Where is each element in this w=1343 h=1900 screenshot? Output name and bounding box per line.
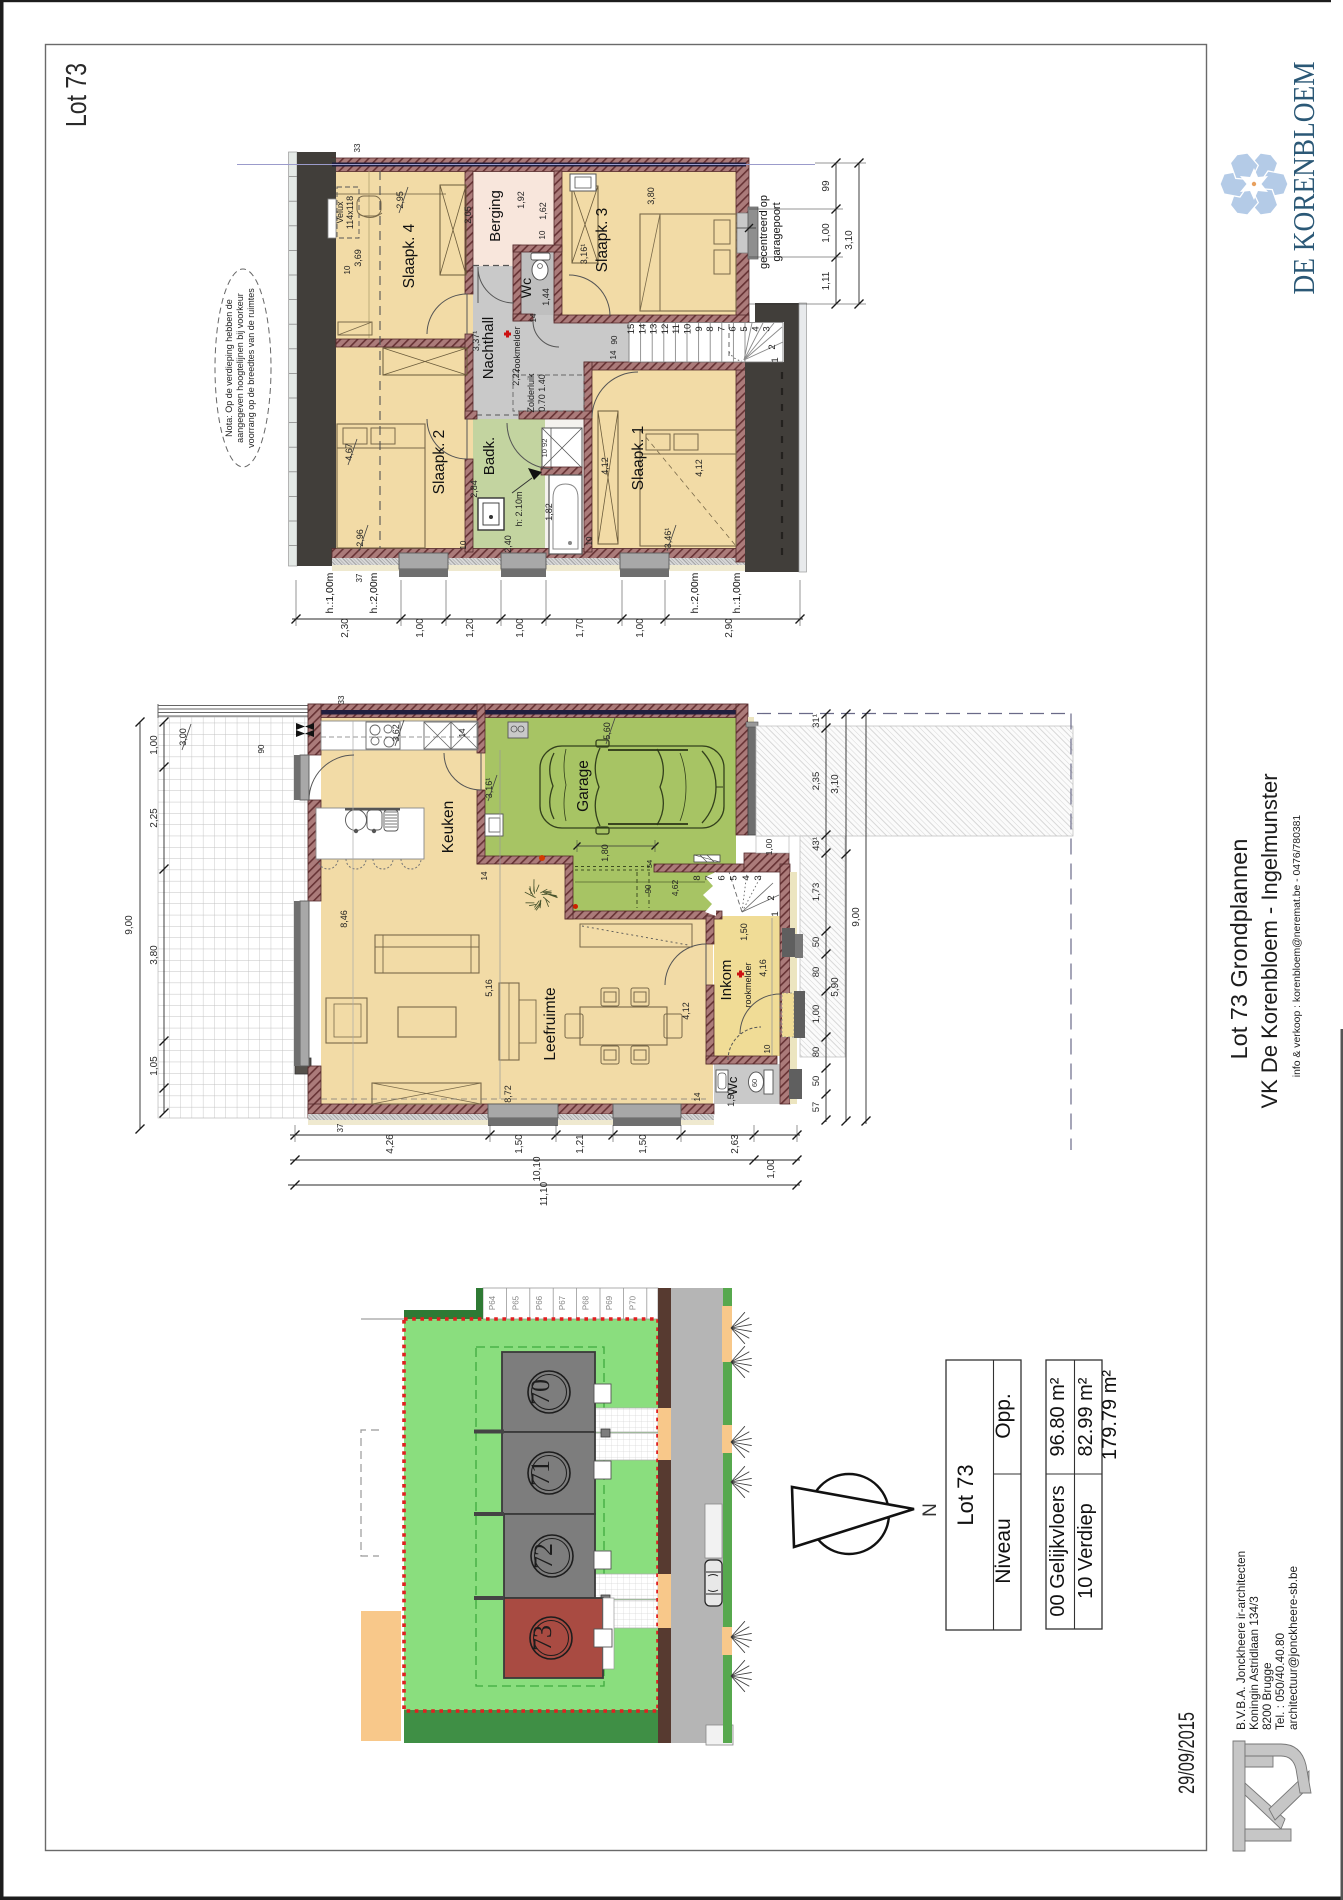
- svg-text:4,26: 4,26: [385, 1134, 396, 1154]
- svg-text:B.V.B.A. Jonckheere ir-archite: B.V.B.A. Jonckheere ir-architecten: [1234, 1551, 1248, 1730]
- svg-text:info & verkoop : korenbloem@ne: info & verkoop : korenbloem@neremat.be -…: [1292, 815, 1303, 1078]
- svg-text:Nota: Op de verdieping hebben: Nota: Op de verdieping hebben de: [224, 299, 234, 437]
- svg-text:1,50: 1,50: [514, 1134, 525, 1154]
- svg-text:1,80: 1,80: [600, 844, 610, 862]
- svg-text:2,35: 2,35: [811, 772, 822, 791]
- svg-text:1,00: 1,00: [811, 1005, 822, 1024]
- svg-text:9,00: 9,00: [124, 915, 135, 935]
- svg-text:Slaapk. 4: Slaapk. 4: [401, 223, 418, 288]
- svg-text:3,37¹: 3,37¹: [471, 331, 481, 352]
- svg-text:4,12: 4,12: [600, 457, 610, 475]
- svg-text:10: 10: [538, 230, 547, 239]
- svg-text:2,30: 2,30: [340, 618, 351, 638]
- svg-text:4,12: 4,12: [681, 1002, 691, 1020]
- svg-text:3,80: 3,80: [646, 187, 656, 205]
- svg-text:Wc: Wc: [518, 278, 534, 298]
- svg-text:P68: P68: [582, 1295, 591, 1310]
- svg-text:h.:2,00m: h.:2,00m: [689, 572, 701, 613]
- svg-text:6: 6: [728, 326, 739, 331]
- svg-text:Opp.: Opp.: [992, 1393, 1015, 1439]
- svg-text:3,80: 3,80: [149, 945, 160, 965]
- svg-text:P67: P67: [558, 1295, 567, 1310]
- svg-text:1,11: 1,11: [821, 271, 832, 290]
- svg-text:2,90: 2,90: [724, 618, 735, 638]
- svg-text:P64: P64: [488, 1295, 497, 1310]
- svg-text:3: 3: [762, 326, 773, 331]
- svg-text:00 Gelijkvloers: 00 Gelijkvloers: [1047, 1485, 1069, 1616]
- svg-text:5,16: 5,16: [484, 979, 494, 997]
- svg-text:3,16¹: 3,16¹: [579, 244, 589, 265]
- svg-text:4,16: 4,16: [758, 959, 768, 977]
- svg-text:15: 15: [626, 324, 637, 335]
- svg-text:90: 90: [610, 335, 619, 344]
- svg-text:10 92: 10 92: [540, 439, 549, 458]
- svg-text:37: 37: [355, 573, 364, 582]
- svg-text:12: 12: [660, 324, 671, 335]
- svg-text:9: 9: [694, 326, 705, 331]
- svg-text:Lot 73: Lot 73: [953, 1464, 978, 1525]
- svg-text:14: 14: [637, 324, 648, 335]
- svg-text:10: 10: [343, 265, 352, 274]
- svg-text:Slaapk. 2: Slaapk. 2: [431, 430, 448, 495]
- svg-text:1,50: 1,50: [638, 1134, 649, 1154]
- svg-text:6: 6: [716, 875, 727, 880]
- svg-text:7: 7: [704, 875, 715, 880]
- svg-text:80: 80: [811, 967, 822, 978]
- svg-text:90: 90: [644, 884, 653, 893]
- svg-text:82.99 m²: 82.99 m²: [1075, 1377, 1097, 1456]
- svg-text:2: 2: [766, 895, 777, 900]
- svg-text:2,05: 2,05: [463, 206, 473, 224]
- svg-text:1: 1: [770, 911, 781, 916]
- svg-text:96.80 m²: 96.80 m²: [1047, 1377, 1069, 1456]
- svg-text:14: 14: [609, 350, 618, 359]
- svg-text:2,63: 2,63: [730, 1134, 741, 1154]
- svg-text:3,10: 3,10: [830, 774, 841, 794]
- svg-text:1,44: 1,44: [541, 288, 551, 306]
- svg-text:33: 33: [353, 143, 362, 152]
- svg-text:14: 14: [458, 728, 467, 737]
- svg-text:10: 10: [683, 324, 694, 335]
- svg-text:5: 5: [729, 875, 740, 880]
- svg-text:1,00: 1,00: [415, 618, 426, 638]
- svg-text:2: 2: [767, 344, 778, 349]
- svg-text:1,50: 1,50: [726, 1089, 736, 1107]
- svg-text:50: 50: [811, 1076, 822, 1087]
- svg-text:11,10: 11,10: [539, 1181, 550, 1206]
- svg-text:3,69: 3,69: [353, 249, 363, 267]
- svg-text:11: 11: [671, 324, 682, 334]
- svg-text:gecentreerd op: gecentreerd op: [758, 195, 770, 269]
- svg-text:Slaapk. 1: Slaapk. 1: [630, 426, 647, 491]
- svg-text:2,40: 2,40: [503, 535, 513, 553]
- svg-text:8: 8: [692, 875, 703, 880]
- svg-text:Zolderluik: Zolderluik: [526, 373, 536, 413]
- svg-text:Tel. : 050/40.40.80: Tel. : 050/40.40.80: [1273, 1632, 1287, 1730]
- svg-text:1,50: 1,50: [739, 923, 749, 941]
- svg-text:1,00: 1,00: [515, 618, 526, 638]
- svg-text:1,00: 1,00: [635, 618, 646, 638]
- svg-text:Inkom: Inkom: [718, 960, 735, 1001]
- svg-text:h.:1,00m: h.:1,00m: [324, 572, 336, 613]
- svg-text:P65: P65: [511, 1295, 520, 1310]
- svg-text:aangegeven hoogtelijnen bij v: aangegeven hoogtelijnen bij voorkeur: [235, 293, 245, 443]
- svg-text:71: 71: [526, 1460, 555, 1486]
- svg-text:31¹: 31¹: [811, 714, 822, 728]
- svg-text:29/09/2015: 29/09/2015: [1174, 1712, 1199, 1794]
- svg-text:5,90: 5,90: [830, 977, 841, 997]
- svg-text:33: 33: [337, 695, 346, 704]
- svg-text:h.:1,00m: h.:1,00m: [731, 572, 743, 613]
- svg-text:179.79 m²: 179.79 m²: [1099, 1370, 1121, 1460]
- svg-text:Velux: Velux: [335, 201, 345, 224]
- svg-text:1,00: 1,00: [764, 838, 774, 855]
- svg-text:Garage: Garage: [575, 760, 592, 812]
- svg-text:8200 Brugge: 8200 Brugge: [1260, 1662, 1274, 1730]
- svg-text:h.:2,00m: h.:2,00m: [368, 572, 380, 613]
- svg-text:Koningin Astridlaan 134/3: Koningin Astridlaan 134/3: [1247, 1596, 1261, 1730]
- svg-text:14: 14: [480, 871, 489, 880]
- svg-text:Lot 73 Grondplannen: Lot 73 Grondplannen: [1226, 839, 1252, 1060]
- svg-text:VK De Korenbloem - Ingelmunst: VK De Korenbloem - Ingelmunster: [1257, 773, 1282, 1108]
- svg-text:P69: P69: [605, 1295, 614, 1310]
- svg-text:1,00: 1,00: [766, 1159, 777, 1179]
- svg-text:voorrang op de breedtes van de: voorrang op de breedtes van de ruimtes: [246, 288, 256, 448]
- svg-text:1,62: 1,62: [538, 202, 548, 220]
- svg-text:2,25: 2,25: [149, 808, 160, 828]
- svg-text:4,62: 4,62: [670, 879, 680, 896]
- svg-text:5: 5: [739, 326, 750, 331]
- svg-text:43¹: 43¹: [811, 837, 822, 851]
- svg-text:72: 72: [529, 1543, 558, 1569]
- svg-text:DE KORENBLOEM: DE KORENBLOEM: [1286, 62, 1321, 295]
- svg-text:13: 13: [649, 324, 660, 335]
- svg-text:73: 73: [528, 1625, 557, 1651]
- svg-text:Nachthall: Nachthall: [480, 317, 497, 380]
- svg-text:Keuken: Keuken: [440, 801, 457, 854]
- svg-text:4: 4: [750, 326, 761, 331]
- svg-text:10: 10: [763, 1044, 772, 1053]
- svg-text:h: 2.10m: h: 2.10m: [514, 491, 524, 526]
- svg-text:1,21: 1,21: [575, 1134, 586, 1154]
- svg-text:1: 1: [770, 357, 781, 362]
- svg-text:1,00: 1,00: [149, 735, 160, 755]
- svg-text:Niveau: Niveau: [992, 1518, 1015, 1583]
- svg-text:70: 70: [526, 1379, 555, 1405]
- svg-text:P70: P70: [628, 1295, 637, 1310]
- svg-text:1,20: 1,20: [465, 618, 476, 638]
- svg-text:90: 90: [257, 744, 266, 753]
- svg-text:rookmelder: rookmelder: [512, 326, 522, 371]
- svg-text:1,00: 1,00: [821, 223, 832, 243]
- svg-text:N: N: [920, 1503, 941, 1517]
- svg-text:0.70 1.40: 0.70 1.40: [537, 374, 547, 412]
- svg-text:Berging: Berging: [487, 190, 504, 242]
- svg-text:57: 57: [811, 1102, 822, 1113]
- svg-text:2,84: 2,84: [469, 480, 479, 498]
- svg-text:Lot 73: Lot 73: [61, 63, 93, 127]
- svg-text:50: 50: [811, 937, 822, 948]
- svg-text:4: 4: [741, 875, 752, 880]
- svg-text:10: 10: [459, 540, 468, 549]
- svg-text:14: 14: [529, 313, 538, 322]
- svg-text:80: 80: [811, 1047, 822, 1058]
- svg-text:1,92: 1,92: [516, 191, 526, 209]
- svg-text:99: 99: [821, 180, 832, 192]
- svg-text:1,73: 1,73: [811, 883, 822, 902]
- svg-text:10: 10: [585, 536, 594, 545]
- svg-text:14: 14: [693, 1092, 702, 1101]
- svg-text:3,10: 3,10: [844, 230, 855, 250]
- svg-text:Leefruimte: Leefruimte: [542, 987, 559, 1060]
- svg-text:10,10: 10,10: [532, 1156, 543, 1181]
- svg-text:1,82: 1,82: [544, 503, 554, 521]
- svg-text:Slaapk. 3: Slaapk. 3: [594, 208, 611, 273]
- svg-text:3: 3: [753, 875, 764, 880]
- svg-text:2,22: 2,22: [511, 368, 521, 386]
- svg-text:Badk.: Badk.: [481, 437, 498, 475]
- svg-text:1,05: 1,05: [149, 1056, 160, 1076]
- svg-text:1,70: 1,70: [575, 618, 586, 638]
- svg-text:114x118: 114x118: [345, 196, 355, 229]
- svg-text:8: 8: [705, 326, 716, 331]
- svg-text:rookmelder: rookmelder: [743, 962, 753, 1007]
- svg-text:9,00: 9,00: [851, 907, 862, 927]
- svg-text:60: 60: [750, 1079, 759, 1087]
- svg-text:4,12: 4,12: [694, 459, 704, 477]
- svg-text:10 Verdiep: 10 Verdiep: [1075, 1503, 1097, 1599]
- svg-text:7: 7: [716, 326, 727, 331]
- svg-text:37: 37: [336, 1123, 345, 1132]
- svg-text:8,46: 8,46: [339, 910, 349, 928]
- svg-text:garagepoort: garagepoort: [771, 202, 783, 261]
- svg-text:54: 54: [645, 860, 654, 868]
- svg-text:architectuur@jonckheere-sb.be: architectuur@jonckheere-sb.be: [1286, 1565, 1300, 1730]
- svg-text:P66: P66: [535, 1295, 544, 1310]
- svg-text:8,72: 8,72: [503, 1085, 513, 1103]
